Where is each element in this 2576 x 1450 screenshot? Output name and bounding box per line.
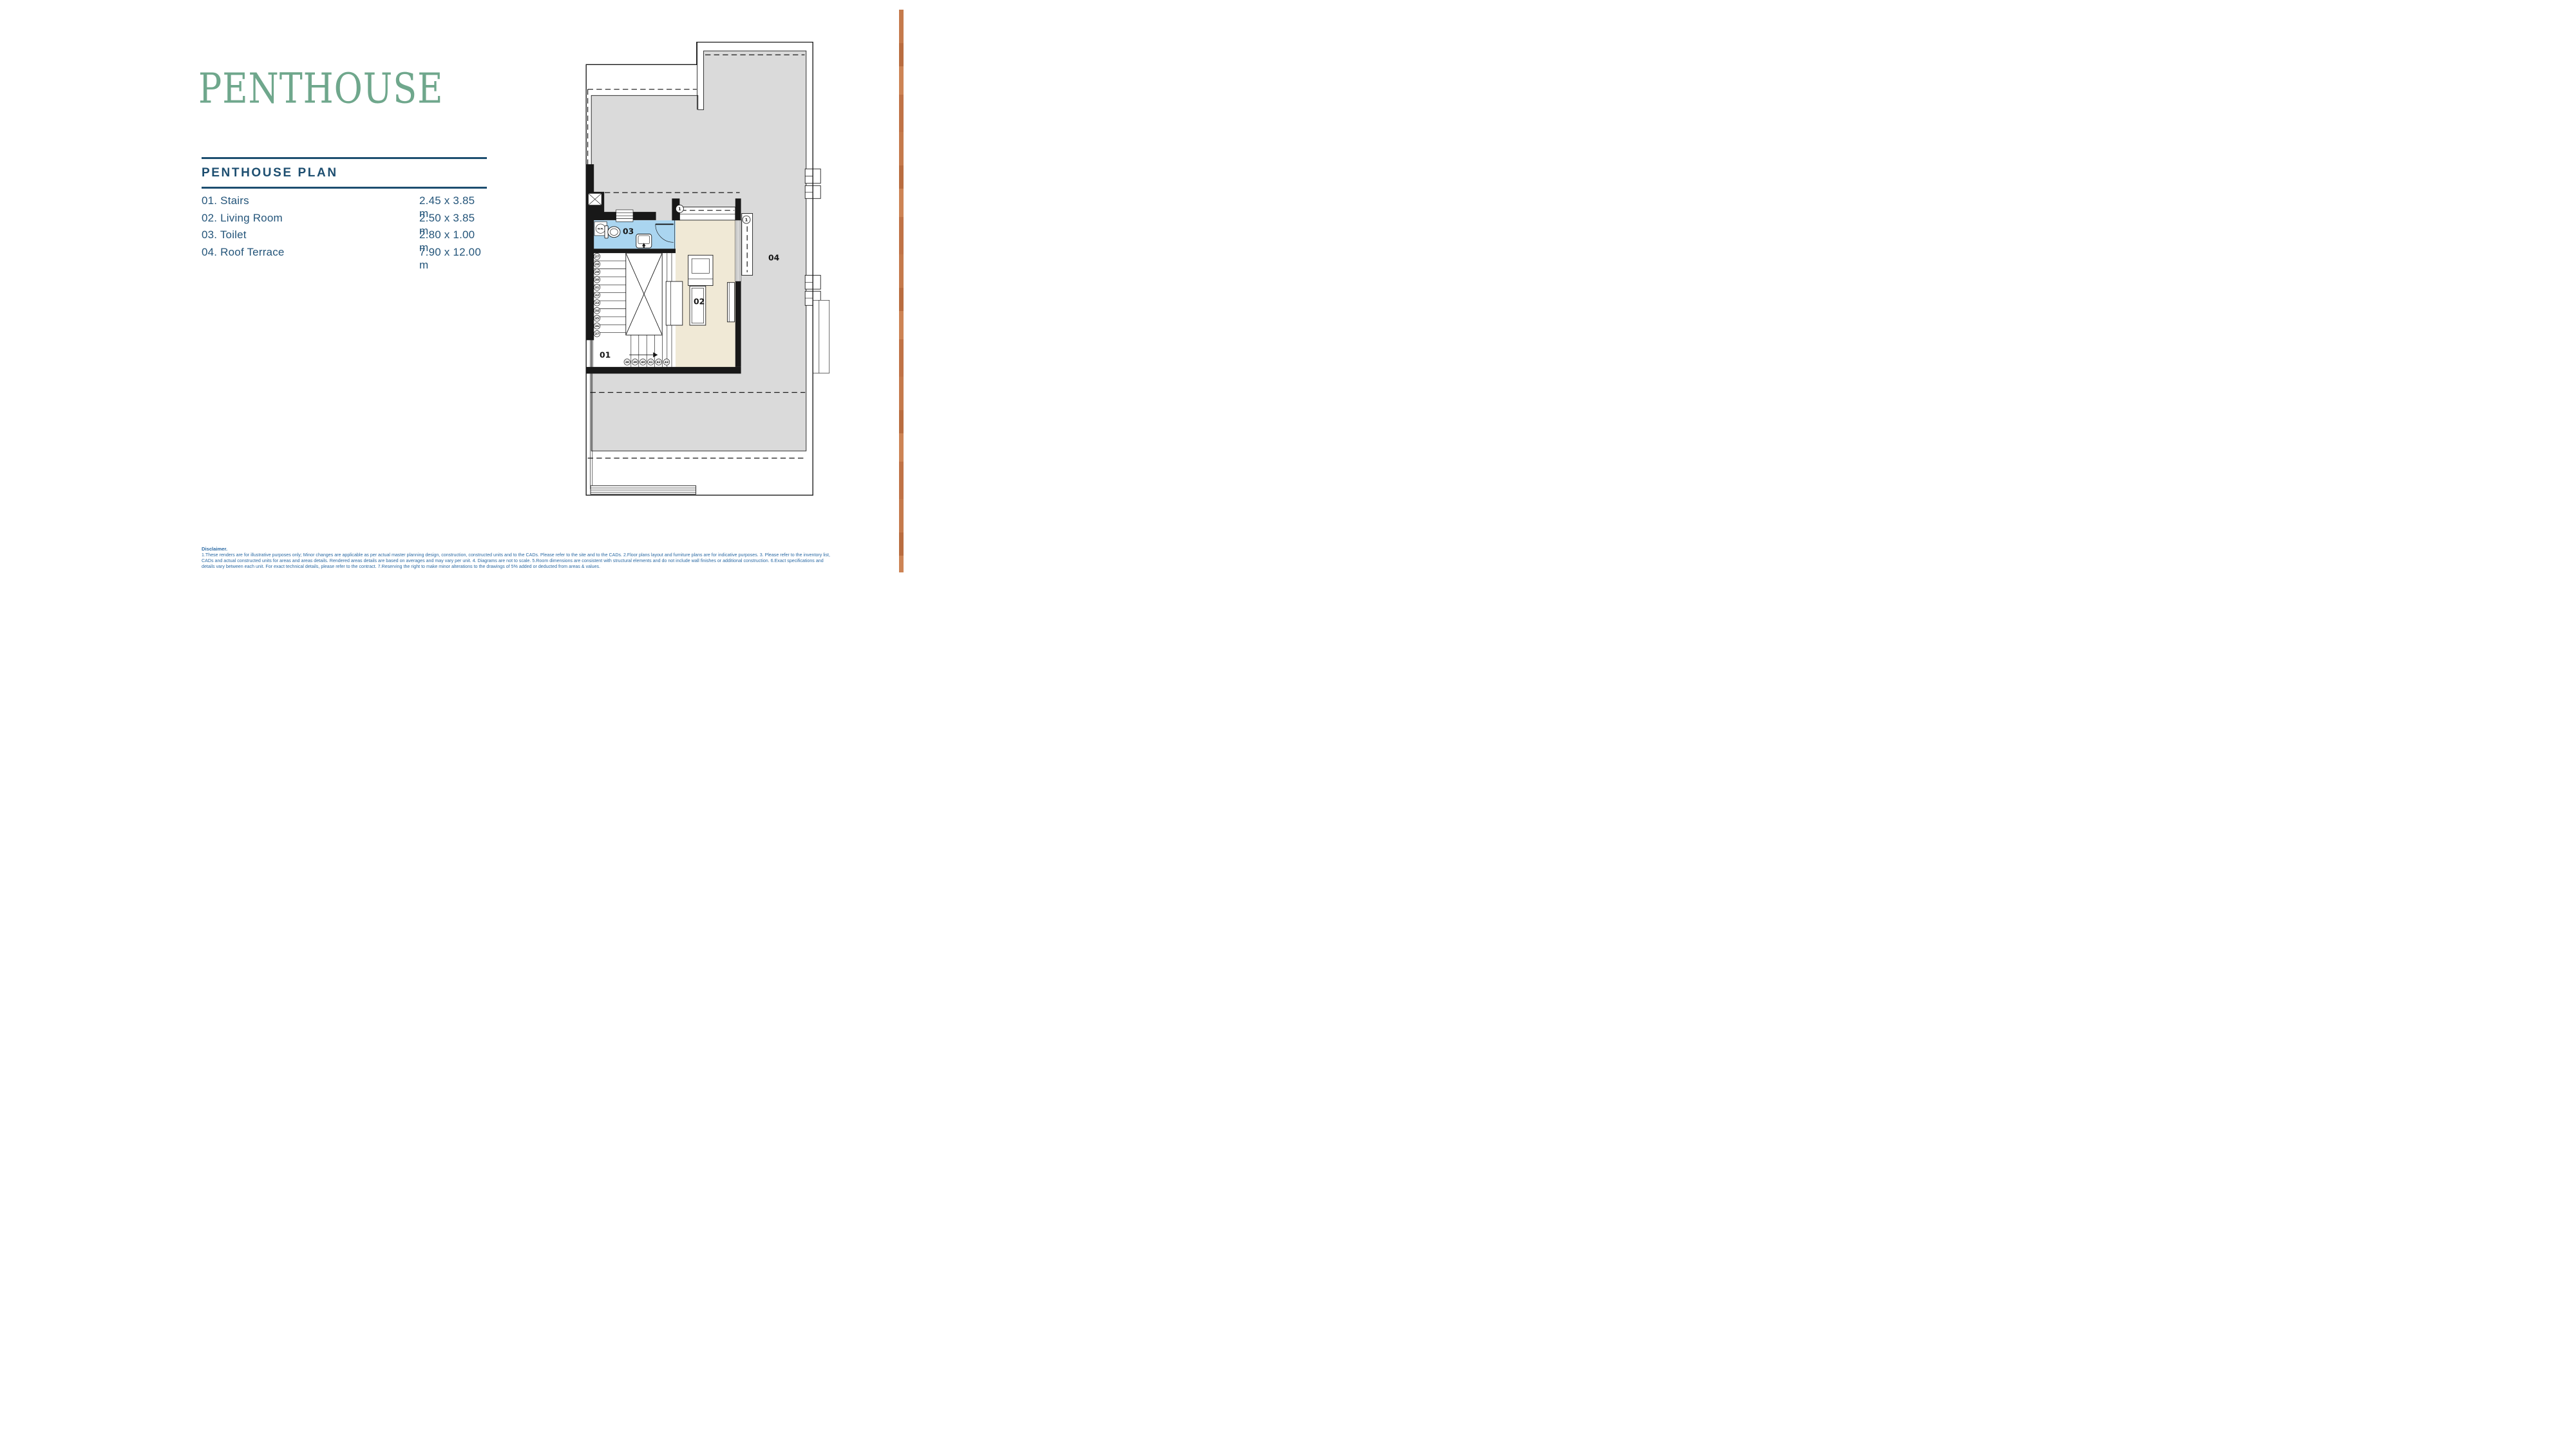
page-title: PENTHOUSE xyxy=(198,64,443,113)
svg-text:35: 35 xyxy=(595,317,599,321)
svg-text:37: 37 xyxy=(595,332,599,336)
svg-text:28: 28 xyxy=(595,263,599,267)
legend-room-label: 04. Roof Terrace xyxy=(202,246,285,258)
legend-row-roof-terrace: 04. Roof Terrace 7.90 x 12.00 m xyxy=(202,246,487,263)
sofa xyxy=(666,281,683,325)
svg-text:29: 29 xyxy=(595,270,599,274)
svg-text:39: 39 xyxy=(633,361,637,364)
legend-rule-top xyxy=(202,157,487,159)
legend-room-label: 02. Living Room xyxy=(202,212,283,224)
living-top-window xyxy=(679,207,735,220)
living-right-window xyxy=(735,214,753,282)
armchair xyxy=(688,255,713,285)
svg-text:1: 1 xyxy=(678,207,681,212)
legend-room-label: 01. Stairs xyxy=(202,194,249,207)
living-room-label: 02 xyxy=(694,296,705,306)
legend-rule-bottom xyxy=(202,187,487,189)
legend-row-stairs: 01. Stairs 2.45 x 3.85 m xyxy=(202,194,487,212)
louver-strip xyxy=(591,485,696,494)
stairs-label: 01 xyxy=(600,350,611,360)
legend-header: PENTHOUSE PLAN xyxy=(202,166,487,180)
disclaimer-heading: Disclaimer. xyxy=(202,546,831,552)
legend-row-toilet: 03. Toilet 2.80 x 1.00 m xyxy=(202,229,487,246)
svg-text:43: 43 xyxy=(665,361,668,364)
sink-icon xyxy=(636,234,652,249)
disclaimer-text: 1.These renders are for illustrative pur… xyxy=(202,552,831,570)
page: PENTHOUSE PENTHOUSE PLAN 01. Stairs 2.45… xyxy=(0,0,1030,580)
svg-text:32: 32 xyxy=(595,294,599,297)
disclaimer: Disclaimer. 1.These renders are for illu… xyxy=(202,546,831,570)
svg-text:27: 27 xyxy=(595,255,599,259)
svg-text:42: 42 xyxy=(657,361,661,364)
floor-plan: 2728293031323334353637 383940414243 W.M. xyxy=(584,41,834,496)
legend-row-living-room: 02. Living Room 2.50 x 3.85 m xyxy=(202,212,487,229)
console xyxy=(727,283,734,322)
column-x-box xyxy=(588,193,601,205)
facade-window-blocks xyxy=(805,169,829,373)
svg-text:W.M.: W.M. xyxy=(598,228,603,231)
toilet-window xyxy=(616,210,633,221)
roof-terrace-label: 04 xyxy=(768,252,780,262)
window-mark-1: 1 xyxy=(676,205,683,212)
stair-step-numbers-left: 2728293031323334353637 xyxy=(594,254,600,337)
window-mark-2: 1 xyxy=(743,216,750,223)
legend-room-dims: 7.90 x 12.00 m xyxy=(419,246,487,272)
svg-text:41: 41 xyxy=(649,361,652,364)
toilet-label: 03 xyxy=(623,227,634,236)
svg-text:36: 36 xyxy=(595,325,599,328)
svg-text:40: 40 xyxy=(641,361,645,364)
copper-stripe xyxy=(899,10,904,572)
svg-text:31: 31 xyxy=(595,286,599,290)
svg-text:30: 30 xyxy=(595,278,599,282)
plan-legend: PENTHOUSE PLAN 01. Stairs 2.45 x 3.85 m … xyxy=(202,157,487,263)
svg-text:33: 33 xyxy=(595,301,599,305)
wc-toilet-icon xyxy=(605,226,620,238)
legend-rows: 01. Stairs 2.45 x 3.85 m 02. Living Room… xyxy=(202,194,487,263)
svg-text:34: 34 xyxy=(595,309,599,313)
svg-text:38: 38 xyxy=(625,361,629,364)
svg-text:1: 1 xyxy=(745,218,748,223)
legend-room-label: 03. Toilet xyxy=(202,229,247,241)
